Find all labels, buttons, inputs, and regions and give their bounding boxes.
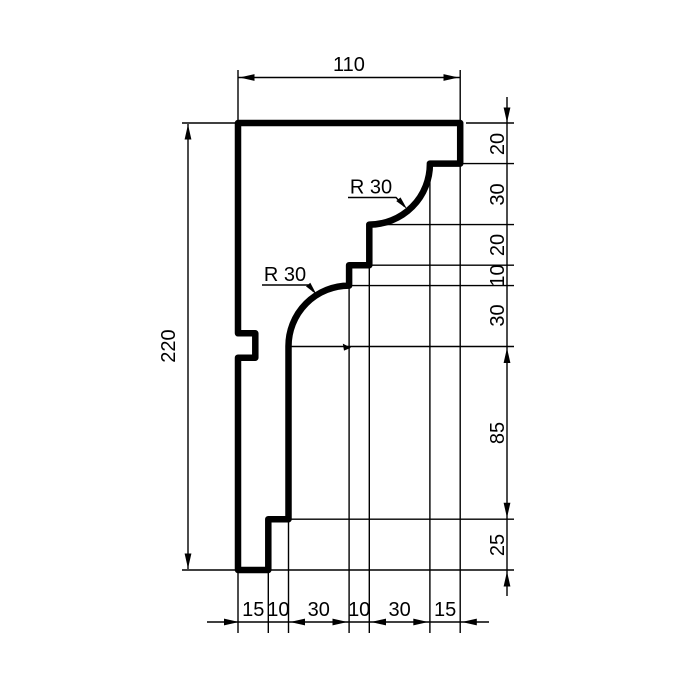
radius-callout-1-label: R 30: [350, 177, 392, 199]
dim-right-label-3: 20: [487, 234, 509, 256]
dim-right-label-7: 25: [487, 534, 509, 556]
arrowhead: [504, 348, 511, 363]
arrowhead: [413, 619, 428, 626]
arrowhead: [504, 572, 511, 587]
extension-lines: [182, 70, 514, 633]
arrowhead: [371, 619, 386, 626]
dim-right-label-2: 30: [487, 183, 509, 205]
arrowhead: [333, 619, 348, 626]
dim-bottom-label-4: 10: [348, 599, 370, 621]
dim-top-label: 110: [333, 54, 365, 76]
dim-bottom-label-2: 10: [267, 599, 289, 621]
arrowhead: [504, 108, 511, 123]
arrowhead: [224, 619, 239, 626]
radius-callout-2-label: R 30: [264, 264, 306, 286]
dim-right-label-6: 85: [487, 422, 509, 444]
arrowhead: [504, 503, 511, 518]
dim-bottom-label-1: 15: [242, 599, 264, 621]
cornice-profile-technical-drawing: 110 220 20 30 20 10 30 85 25 15 10 30 10…: [0, 0, 686, 686]
arrowhead: [444, 74, 459, 81]
arrowhead: [185, 554, 192, 569]
drawing-canvas: 110 220 20 30 20 10 30 85 25 15 10 30 10…: [0, 0, 686, 686]
dim-bottom-label-6: 15: [434, 599, 456, 621]
dim-right-label-5: 30: [487, 304, 509, 326]
arrowhead: [240, 74, 255, 81]
arrowhead: [462, 619, 477, 626]
dim-bottom-label-3: 30: [308, 599, 330, 621]
dimension-labels: 110 220 20 30 20 10 30 85 25 15 10 30 10…: [158, 54, 509, 621]
dim-right-label-4: 10: [487, 264, 509, 286]
dim-right-label-1: 20: [487, 133, 509, 155]
arrowhead: [290, 619, 305, 626]
dim-bottom-label-5: 30: [388, 599, 410, 621]
arrowhead: [185, 125, 192, 140]
radius-leader-line: [348, 198, 405, 207]
dim-left-label: 220: [158, 329, 180, 362]
